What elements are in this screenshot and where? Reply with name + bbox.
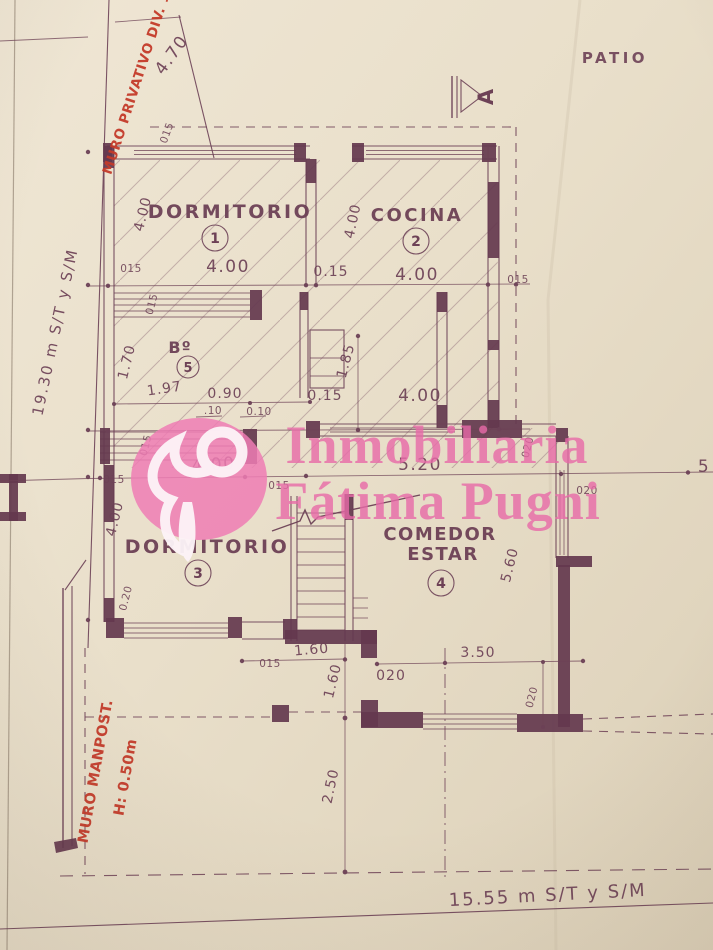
- dim-015-right: 015: [507, 274, 529, 286]
- dim-015-mid: 0.15: [313, 264, 348, 280]
- dim-5-edge: 5: [698, 457, 710, 477]
- room-number-2: 2: [411, 234, 421, 250]
- terrace-column: [272, 705, 289, 722]
- dim-010a: .10: [204, 405, 222, 417]
- dim-010b: 0.10: [246, 406, 271, 418]
- dim-015-left: 015: [120, 263, 142, 275]
- room-label-estar: ESTAR: [407, 544, 478, 565]
- dim-350: 3.50: [460, 645, 495, 661]
- room-label-cocina: COCINA: [371, 205, 463, 226]
- dim-015-hall: 0.15: [307, 388, 342, 404]
- dim-090: 0.90: [207, 386, 242, 402]
- dim-400-cocina: 4.00: [395, 265, 439, 285]
- room-number-3: 3: [193, 566, 203, 582]
- room-number-5: 5: [183, 361, 192, 376]
- room-label-dormitorio-1: DORMITORIO: [148, 201, 313, 223]
- watermark-text-line1: Inmobiliaria: [285, 415, 588, 475]
- room-number-1: 1: [210, 231, 220, 247]
- patio-label: PATIO: [582, 49, 648, 67]
- dim-015-bottom: 015: [259, 658, 281, 670]
- room-number-4: 4: [436, 576, 446, 592]
- dim-160-h: 1.60: [293, 641, 329, 660]
- dim-020-bottom: 020: [376, 668, 406, 684]
- room-label-bano: Bº: [168, 338, 191, 357]
- floor-plan-svg: A PATIO: [0, 0, 713, 950]
- dim-400-dorm1: 4.00: [206, 257, 250, 277]
- dim-015-w2: 015: [103, 474, 125, 486]
- floor-plan-photo: A PATIO: [0, 0, 713, 950]
- dim-400-hall: 4.00: [398, 386, 442, 406]
- section-marker-label: A: [474, 88, 498, 105]
- watermark-text-line2: Fátima Pugni: [275, 471, 601, 531]
